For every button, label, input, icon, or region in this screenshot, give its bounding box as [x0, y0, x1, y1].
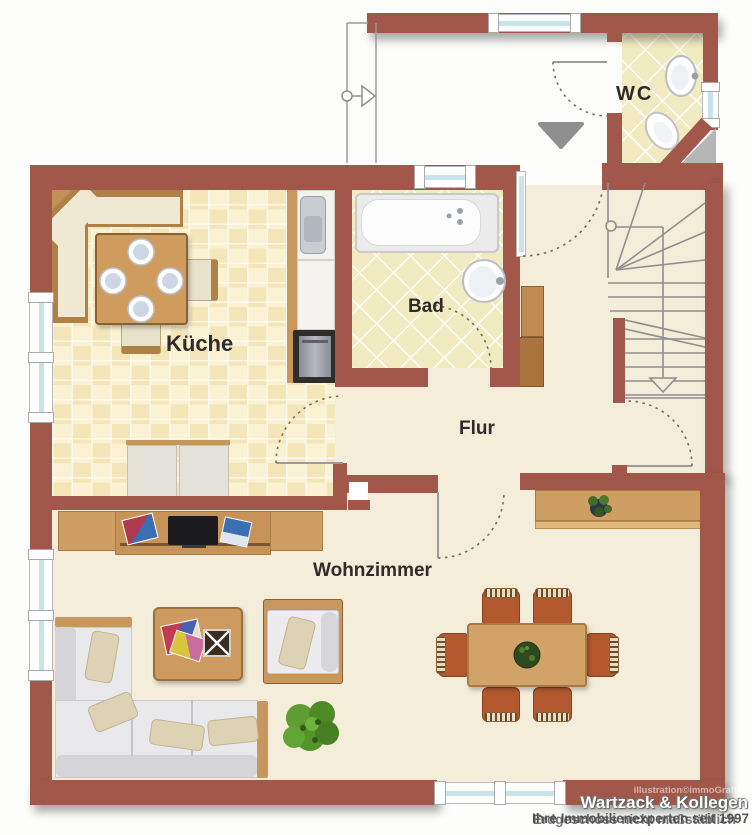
bathroom-sink: [463, 260, 505, 302]
livingroom-door-swing: [438, 492, 504, 558]
table-plates: [100, 239, 183, 322]
entrance-arrow-icon: [540, 124, 582, 147]
room-label-wc: WC: [616, 84, 653, 104]
dining-plant-icon: [514, 642, 540, 668]
wc-sink: [666, 56, 699, 96]
kitchen-door-swing: [276, 396, 343, 463]
room-label-flur: Flur: [459, 419, 495, 438]
entrance-door-swing: [523, 175, 604, 256]
sideboard-plant-icon: [588, 495, 612, 517]
linework-overlay: [0, 0, 752, 835]
livingroom-plant-icon: [283, 701, 339, 751]
staircase: [606, 183, 705, 398]
bathtub-taps: [447, 208, 464, 225]
floor-plan: Küche Bad WC Flur Wohnzimmer illustratio…: [0, 0, 752, 835]
door-swing-arcs: [276, 62, 692, 558]
room-label-bad: Bad: [408, 297, 444, 316]
watermark-company: Wartzack & Kollegen: [580, 793, 748, 813]
stair-door-swing: [627, 401, 692, 466]
room-label-kueche: Küche: [166, 333, 233, 355]
watermark-note: Erdgeschoss nicht maßstäblich: [533, 812, 736, 827]
wc-door-swing: [553, 62, 607, 116]
room-label-wohnzimmer: Wohnzimmer: [313, 561, 432, 580]
door-leaves: [276, 62, 692, 558]
